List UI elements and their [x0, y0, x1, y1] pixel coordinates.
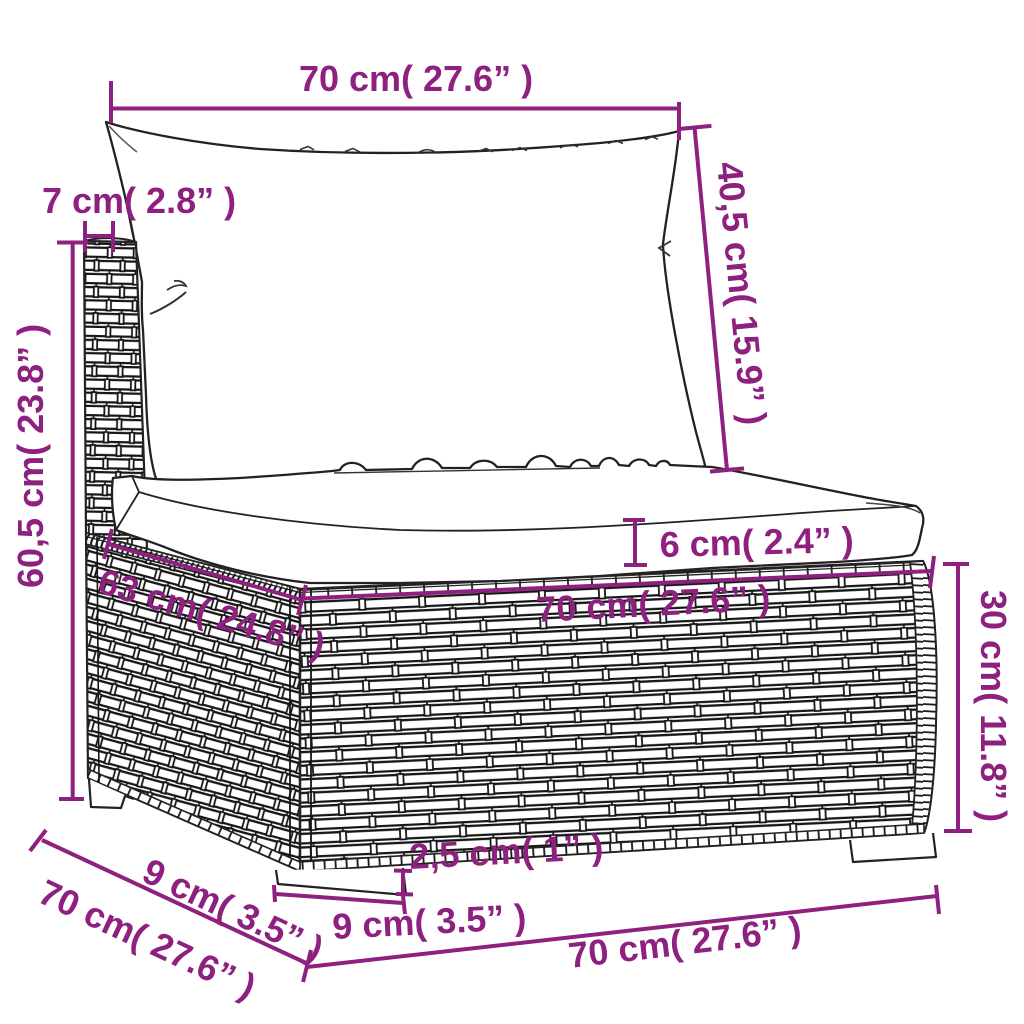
svg-text:6 cm( 2.4” ): 6 cm( 2.4” ): [659, 519, 854, 565]
svg-text:7 cm( 2.8” ): 7 cm( 2.8” ): [42, 180, 236, 221]
svg-text:30 cm( 11.8” ): 30 cm( 11.8” ): [973, 590, 1014, 822]
svg-text:70 cm( 27.6” ): 70 cm( 27.6” ): [299, 58, 533, 99]
svg-text:60,5 cm( 23.8” ): 60,5 cm( 23.8” ): [10, 324, 51, 588]
